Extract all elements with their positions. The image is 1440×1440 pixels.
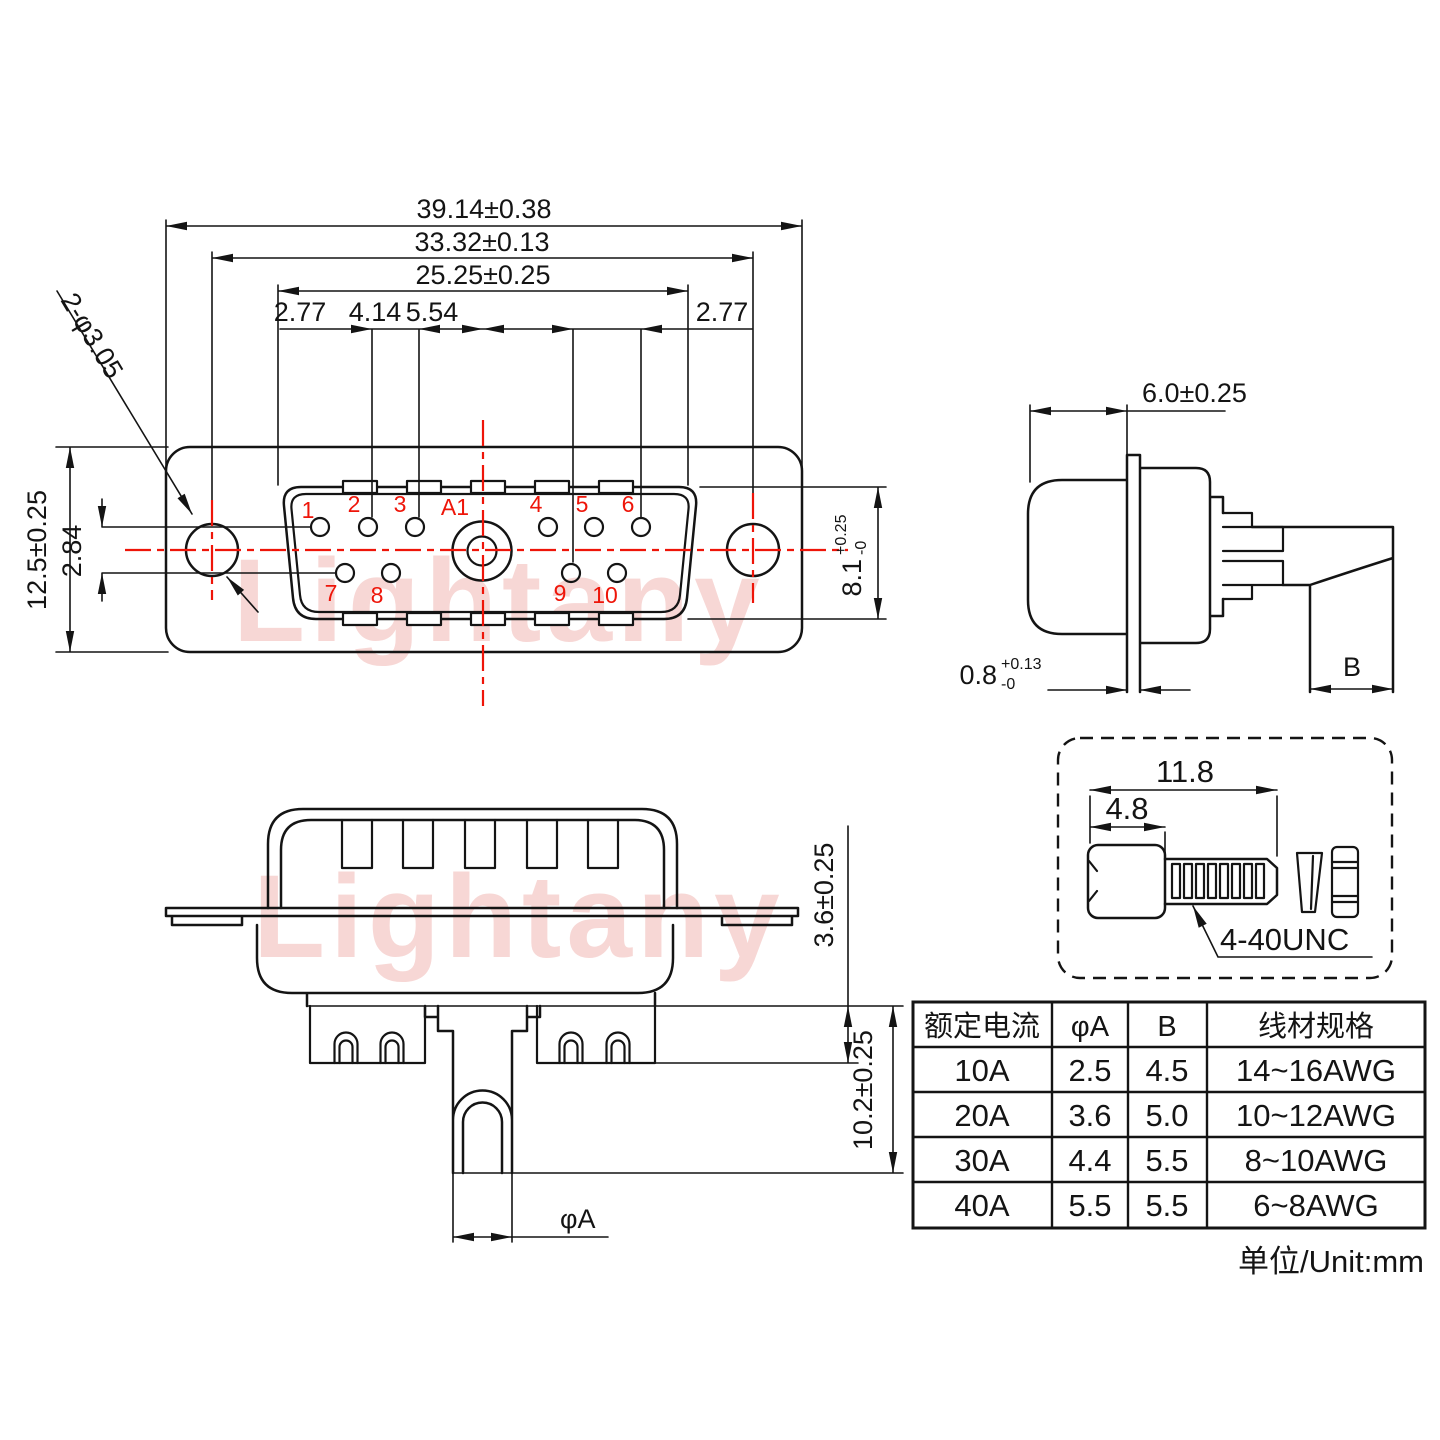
table-header-b: B: [1157, 1011, 1176, 1043]
dim-pitch-a1-right: 5.54: [406, 297, 459, 327]
drawing-sheet: Lightany Lightany 39.14±0.38 33.32±0.13 …: [0, 0, 1440, 1440]
dim-pitch-a1-left: 4.14: [349, 297, 402, 327]
dim-pitch-left: 2.77: [274, 297, 327, 327]
cell-dia-40a: 5.5: [1068, 1188, 1111, 1223]
cell-wire-30a: 8~10AWG: [1245, 1143, 1388, 1178]
pin-label-a1: A1: [441, 494, 469, 520]
table-row: 10A 2.5 4.5 14~16AWG: [954, 1053, 1396, 1088]
dim-shell-height-tol-dn: -0: [853, 541, 870, 555]
side-view: 6.0±0.25 0.8 +0.13 -0 B: [959, 378, 1393, 694]
a1-solder-cup: [425, 1006, 540, 1173]
pin-label-2: 2: [348, 491, 361, 517]
side-body-outline: [1028, 455, 1223, 692]
screw-threads: [1172, 864, 1264, 898]
dim-cup-length: 10.2±0.25: [848, 1030, 878, 1150]
pin-label-8: 8: [371, 582, 384, 608]
dim-cup-diameter: φA: [560, 1204, 596, 1234]
pin-label-9: 9: [554, 580, 567, 606]
pin-label-1: 1: [302, 497, 315, 523]
solder-cup-blocks: [310, 1006, 655, 1063]
pin-3-hole: [406, 518, 424, 536]
dim-wire-width-label: B: [1343, 652, 1361, 682]
cell-current-10a: 10A: [954, 1053, 1009, 1088]
cell-b-40a: 5.5: [1145, 1188, 1188, 1223]
clip-nut: [1332, 847, 1358, 917]
pin-6-hole: [632, 518, 650, 536]
dim-overall-width: 39.14±0.38: [417, 194, 552, 224]
table-row: 20A 3.6 5.0 10~12AWG: [954, 1098, 1396, 1133]
wedge-pin: [1297, 853, 1322, 912]
dim-pitch-right: 2.77: [696, 297, 749, 327]
cell-b-20a: 5.0: [1145, 1098, 1188, 1133]
connector-technical-drawing: Lightany Lightany 39.14±0.38 33.32±0.13 …: [0, 0, 1440, 1440]
cell-wire-10a: 14~16AWG: [1236, 1053, 1396, 1088]
cell-current-40a: 40A: [954, 1188, 1009, 1223]
bottom-dimension-arrowheads: [453, 1006, 897, 1241]
table-header-wire-spec: 线材规格: [1258, 1010, 1374, 1043]
pin-label-5: 5: [576, 491, 589, 517]
screw-head: [1088, 845, 1165, 918]
pin-label-6: 6: [622, 491, 635, 517]
pin-label-4: 4: [530, 491, 543, 517]
table-header-rated-current: 额定电流: [924, 1010, 1040, 1043]
dim-flange-thickness: 0.8: [959, 660, 997, 690]
pin-4-hole: [539, 518, 557, 536]
cell-dia-10a: 2.5: [1068, 1053, 1111, 1088]
cell-b-10a: 4.5: [1145, 1053, 1188, 1088]
pin-label-10: 10: [592, 582, 618, 608]
cell-b-30a: 5.5: [1145, 1143, 1188, 1178]
dim-shell-width: 25.25±0.25: [416, 260, 551, 290]
dim-screw-head-length: 4.8: [1105, 791, 1148, 826]
side-dimension-arrowheads: [1030, 407, 1393, 694]
pin-label-3: 3: [394, 491, 407, 517]
screw-thread-spec: 4-40UNC: [1220, 922, 1349, 957]
dim-flange-thickness-tol-dn: -0: [1001, 676, 1015, 693]
dim-collar-height: 3.6±0.25: [809, 843, 839, 948]
pin-label-7: 7: [325, 580, 338, 606]
screw-head-facets: [1089, 861, 1097, 901]
small-solder-cups: [335, 1033, 630, 1064]
dim-hole-spacing: 33.32±0.13: [415, 227, 550, 257]
pin-5-hole: [585, 518, 603, 536]
cell-current-20a: 20A: [954, 1098, 1009, 1133]
dim-shell-height: 8.1: [837, 559, 867, 597]
pin-2-hole: [359, 518, 377, 536]
table-row: 30A 4.4 5.5 8~10AWG: [954, 1143, 1387, 1178]
cell-wire-20a: 10~12AWG: [1236, 1098, 1396, 1133]
clip-nut-lines: [1332, 862, 1358, 902]
dim-flange-thickness-tol-up: +0.13: [1001, 656, 1042, 673]
cell-dia-20a: 3.6: [1068, 1098, 1111, 1133]
side-dimension-lines: [1030, 405, 1393, 690]
table-row: 40A 5.5 5.5 6~8AWG: [954, 1188, 1378, 1223]
cell-dia-30a: 4.4: [1068, 1143, 1111, 1178]
dim-flange-height: 12.5±0.25: [22, 490, 52, 610]
screw-detail: 11.8 4.8 4-40UNC: [1058, 738, 1392, 978]
dim-shell-height-tol-up: +0.25: [833, 514, 850, 555]
dim-shell-height-group: 8.1 +0.25 -0: [833, 514, 870, 596]
dim-row-gap: 2.84: [57, 525, 87, 578]
dim-body-depth: 6.0±0.25: [1142, 378, 1247, 408]
unit-note: 单位/Unit:mm: [1238, 1244, 1424, 1279]
dim-mounting-holes: 2-φ3.05: [55, 288, 129, 384]
cell-current-30a: 30A: [954, 1143, 1009, 1178]
cell-wire-40a: 6~8AWG: [1253, 1188, 1378, 1223]
table-header-dia-a: φA: [1071, 1011, 1110, 1043]
dim-screw-total-length: 11.8: [1156, 754, 1214, 789]
spec-table: 额定电流 φA B 线材规格 10A 2.5 4.5 14~16AWG 20A …: [913, 1002, 1425, 1228]
